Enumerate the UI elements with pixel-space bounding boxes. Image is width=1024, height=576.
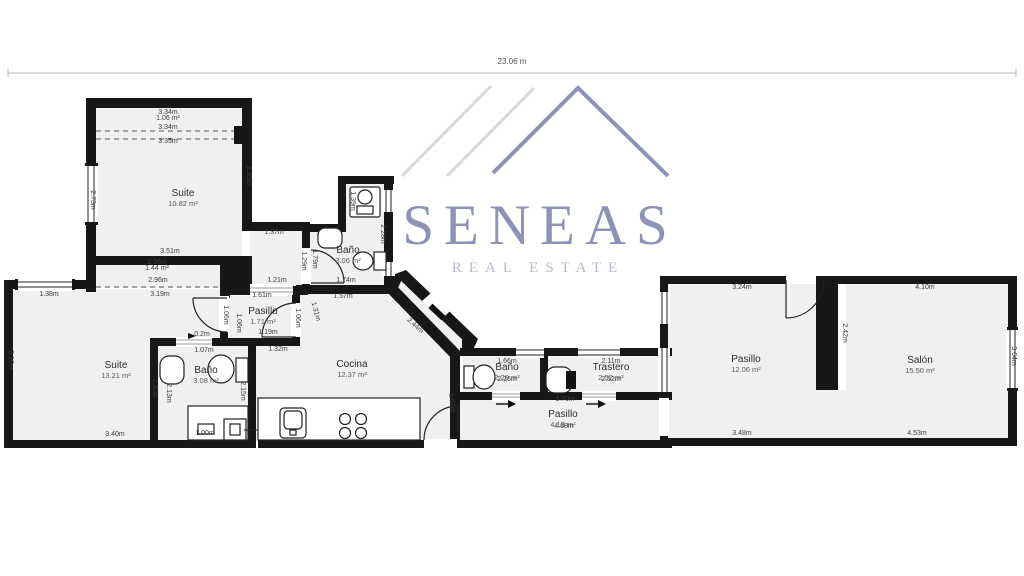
measurement-label: 2.11m: [602, 358, 621, 365]
room-area-label-bano-top: 3.06 m²: [335, 256, 361, 265]
measurement-label: 2.42m: [841, 323, 848, 343]
room-name-label-pasillo-small: Pasillo: [248, 306, 278, 317]
measurement-label: 2.13m: [165, 383, 172, 403]
room-area-label-bano-left: 3.08 m²: [193, 376, 219, 385]
measurement-label: 2.15m: [239, 381, 246, 401]
measurement-label: 4.53m: [907, 430, 927, 437]
room-name-label-bano-top: Baño: [336, 245, 360, 256]
room-area-label-pasillo-right: 12.06 m²: [731, 365, 761, 374]
measurement-label: 1.61m: [252, 292, 272, 299]
kitchen-counter: [258, 398, 420, 440]
measurement-label: 1.37m: [264, 229, 284, 236]
measurement-label: 1.74m: [336, 277, 356, 284]
measurement-label: 1.39m: [349, 191, 356, 211]
logo-tagline: REAL ESTATE: [452, 260, 624, 276]
measurement-label: 1.21m: [267, 277, 287, 284]
room-area-label-cocina: 12.37 m²: [337, 370, 367, 379]
measurement-label: 3.16m: [7, 350, 14, 370]
overall-dimension-label: 23.06 m: [498, 57, 527, 66]
logo-light-line-icon: [447, 88, 534, 176]
room-name-label-suite-top: Suite: [172, 188, 195, 199]
room-name-label-bano-left: Baño: [194, 365, 218, 376]
measurement-label: 2.65m: [245, 166, 252, 186]
measurement-label: 2.73m: [89, 190, 96, 210]
room-name-label-cocina: Cocina: [336, 359, 368, 370]
room-area-label-suite-left: 13.21 m²: [101, 371, 131, 380]
overall-dimension: 23.06 m: [8, 57, 1016, 77]
measurement-label: 1.06 m²: [156, 115, 180, 122]
measurement-label: 3.24m: [732, 284, 752, 291]
sink-icon: [160, 356, 184, 384]
measurement-label: 1.29m: [300, 251, 307, 271]
room-name-label-pasillo-bottom: Pasillo: [548, 409, 578, 420]
measurement-label: 3.19m: [150, 291, 170, 298]
measurement-label: 1.06m: [222, 305, 229, 325]
floor-plan-page: SENEAS REAL ESTATE 23.06 m: [0, 0, 1024, 576]
measurement-label: 3.34m: [158, 124, 178, 131]
measurement-label: 3.35m: [158, 138, 178, 145]
measurement-label: 2.26m: [497, 376, 517, 383]
logo-light-line-icon: [402, 86, 491, 176]
measurement-label: 3.40m: [105, 431, 125, 438]
measurement-label: 2.30m: [151, 378, 158, 398]
measurement-label: 1.44 m²: [145, 265, 169, 272]
measurement-label: 1.57m: [333, 293, 353, 300]
measurement-label: 1.38m: [39, 291, 59, 298]
floor-plan-canvas: SENEAS REAL ESTATE 23.06 m: [0, 0, 1024, 576]
passage-floor: [816, 390, 846, 438]
measurement-label: 3.64m: [1010, 346, 1017, 366]
measurement-label: 2.52m: [601, 376, 621, 383]
measurement-label: 4.10m: [915, 284, 935, 291]
measurement-label: 1.32m: [268, 346, 288, 353]
measurement-label: 1.70m: [555, 396, 575, 403]
measurement-label: 1.00m: [195, 430, 215, 437]
logo-wordmark: SENEAS: [402, 194, 677, 257]
brand-logo: SENEAS REAL ESTATE: [402, 86, 678, 276]
room-area-label-suite-top: 10.82 m²: [168, 199, 198, 208]
room-area-label-pasillo-small: 1.71 m²: [250, 317, 276, 326]
measurement-label: 3.51m: [160, 248, 180, 255]
room-name-label-suite-left: Suite: [105, 360, 128, 371]
room-name-label-pasillo-right: Pasillo: [731, 354, 761, 365]
room-suite-left-floor: [13, 289, 150, 441]
measurement-label: 1.19m: [258, 329, 278, 336]
measurement-label: 4.68m: [554, 423, 574, 430]
measurement-label: 2.28m: [379, 224, 386, 244]
window-suite-left-top: [15, 278, 75, 291]
measurement-label: 1.06m: [294, 308, 301, 328]
kitchen-sink-icon: [280, 408, 306, 438]
measurement-label: 2.96m: [148, 277, 168, 284]
measurement-label: 1.07m: [194, 347, 214, 354]
measurement-label: 1.06m: [235, 313, 242, 333]
room-name-label-salon: Salón: [907, 355, 933, 366]
measurement-label: 1.79m: [311, 249, 318, 269]
measurement-label: 0.2m: [194, 331, 210, 338]
measurement-label: 1.66m: [497, 358, 517, 365]
room-area-label-salon: 15.50 m²: [905, 366, 935, 375]
toilet-icon: [464, 365, 495, 389]
measurement-label: 3.48m: [732, 430, 752, 437]
